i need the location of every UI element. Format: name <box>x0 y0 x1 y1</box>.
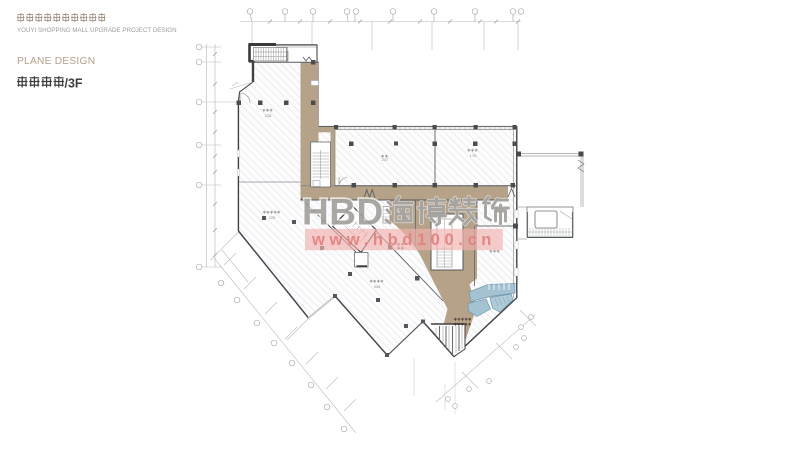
svg-text:247: 247 <box>382 157 389 162</box>
svg-text:HBD: HBD <box>302 192 384 233</box>
svg-text:www.hbd100.cn: www.hbd100.cn <box>311 231 496 249</box>
svg-text:346: 346 <box>374 284 381 289</box>
svg-text:228: 228 <box>265 113 272 118</box>
svg-text:176: 176 <box>470 153 477 158</box>
svg-text:225: 225 <box>269 215 276 220</box>
